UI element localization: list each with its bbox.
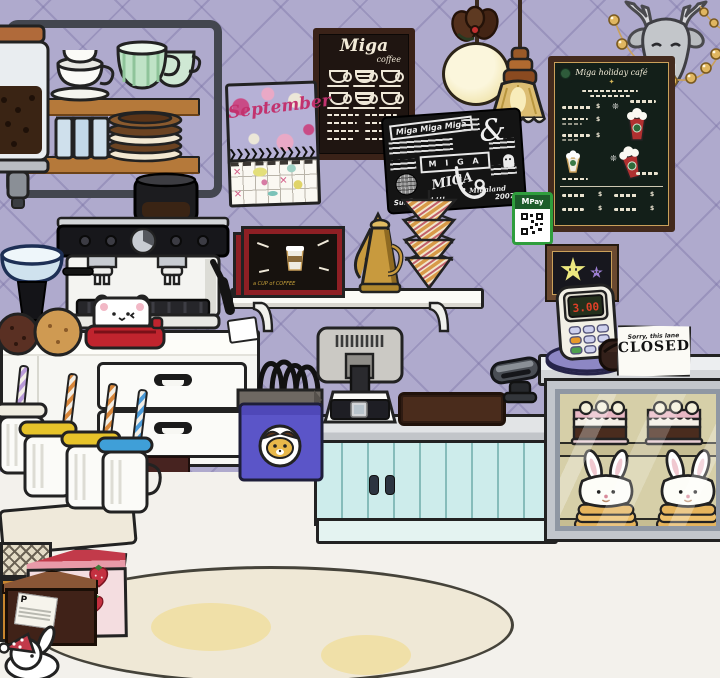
mpay-label: Pay xyxy=(529,198,543,206)
checkout-counter-front[interactable] xyxy=(314,440,558,526)
plate-stack[interactable] xyxy=(106,104,184,162)
holiday-menu-board[interactable]: Miga holiday café ✦ $ $ $ ❊ xyxy=(548,56,675,232)
bunny-plush[interactable] xyxy=(0,618,66,678)
big-star xyxy=(560,257,586,283)
cabinet-handle[interactable] xyxy=(385,475,395,495)
x-mark: ✕ xyxy=(234,190,243,200)
wreath-icon xyxy=(560,68,571,79)
cup-icon xyxy=(329,70,348,83)
register-display: 3.00 xyxy=(572,300,599,315)
snowflake-icon: ❊ xyxy=(612,102,619,111)
bread-buns[interactable] xyxy=(0,306,86,356)
ghost-icon xyxy=(503,154,515,168)
mpay-header: MPay xyxy=(515,195,550,209)
barcode-scanner[interactable] xyxy=(490,350,550,404)
coffee-board-title: Miga xyxy=(319,38,409,54)
shelf-bracket xyxy=(428,303,450,331)
bunny-cake[interactable] xyxy=(648,450,720,531)
holiday-cup-icon xyxy=(622,106,652,142)
star-divider: ✦ xyxy=(554,78,669,86)
mpay-qr-sign[interactable]: MPay xyxy=(512,192,553,245)
snowflake-icon: ❊ xyxy=(610,154,617,163)
cabinet-handle[interactable] xyxy=(369,475,379,495)
cup-icon xyxy=(329,92,348,105)
closed-sign-line2: CLOSED xyxy=(618,339,690,357)
coffee-bean-dispenser[interactable] xyxy=(0,24,52,214)
holiday-cup-icon xyxy=(612,141,650,183)
pos-terminal[interactable] xyxy=(315,326,407,424)
striped-cake[interactable] xyxy=(568,398,632,446)
holiday-menu-title: Miga holiday café xyxy=(554,68,669,77)
coffee-cup-icon xyxy=(282,242,308,272)
glass-tumblers[interactable] xyxy=(54,112,110,160)
coffee-print[interactable]: a CUP of COFFEE xyxy=(241,226,345,298)
calendar-day-headers xyxy=(231,159,317,166)
mason-jar-drinks[interactable] xyxy=(0,366,166,530)
waffle-cone-rack[interactable] xyxy=(397,190,461,294)
coffee-print-caption: a CUP of COFFEE xyxy=(253,281,295,287)
bunny-cake[interactable] xyxy=(566,450,646,531)
wall-calendar[interactable]: September ❯❯❯❯❯❯❯❯❯❯❯❯ ✕ ✕ ✕ xyxy=(225,80,321,205)
x-mark: ✕ xyxy=(233,168,242,178)
paper-cards[interactable] xyxy=(226,316,259,344)
cup-icon xyxy=(381,70,400,83)
coffee-board-subtitle: coffee xyxy=(377,55,401,64)
bakery-display-case[interactable] xyxy=(544,378,720,542)
cup-icon xyxy=(355,92,374,105)
bell-lamp-cord xyxy=(518,0,522,50)
small-star xyxy=(590,266,603,279)
bear-toaster[interactable] xyxy=(84,294,170,350)
cup-icon xyxy=(381,92,400,105)
x-mark: ✕ xyxy=(279,177,288,187)
cream-drink-icon xyxy=(562,148,584,174)
poster-ampersand: & xyxy=(478,112,507,149)
cup-icon xyxy=(355,70,374,83)
calendar-grid: ✕ ✕ ✕ xyxy=(228,156,322,207)
lane-closed-sign[interactable]: Sorry, this lane CLOSED xyxy=(615,323,693,380)
mint-teacups[interactable] xyxy=(114,36,200,100)
cafe-room-scene: Miga coffee September ❯❯❯❯❯❯❯❯❯❯❯❯ ✕ ✕ ✕ xyxy=(0,0,720,678)
striped-cake[interactable] xyxy=(642,398,706,446)
qr-code xyxy=(520,212,544,236)
checkout-counter-base xyxy=(316,518,558,544)
